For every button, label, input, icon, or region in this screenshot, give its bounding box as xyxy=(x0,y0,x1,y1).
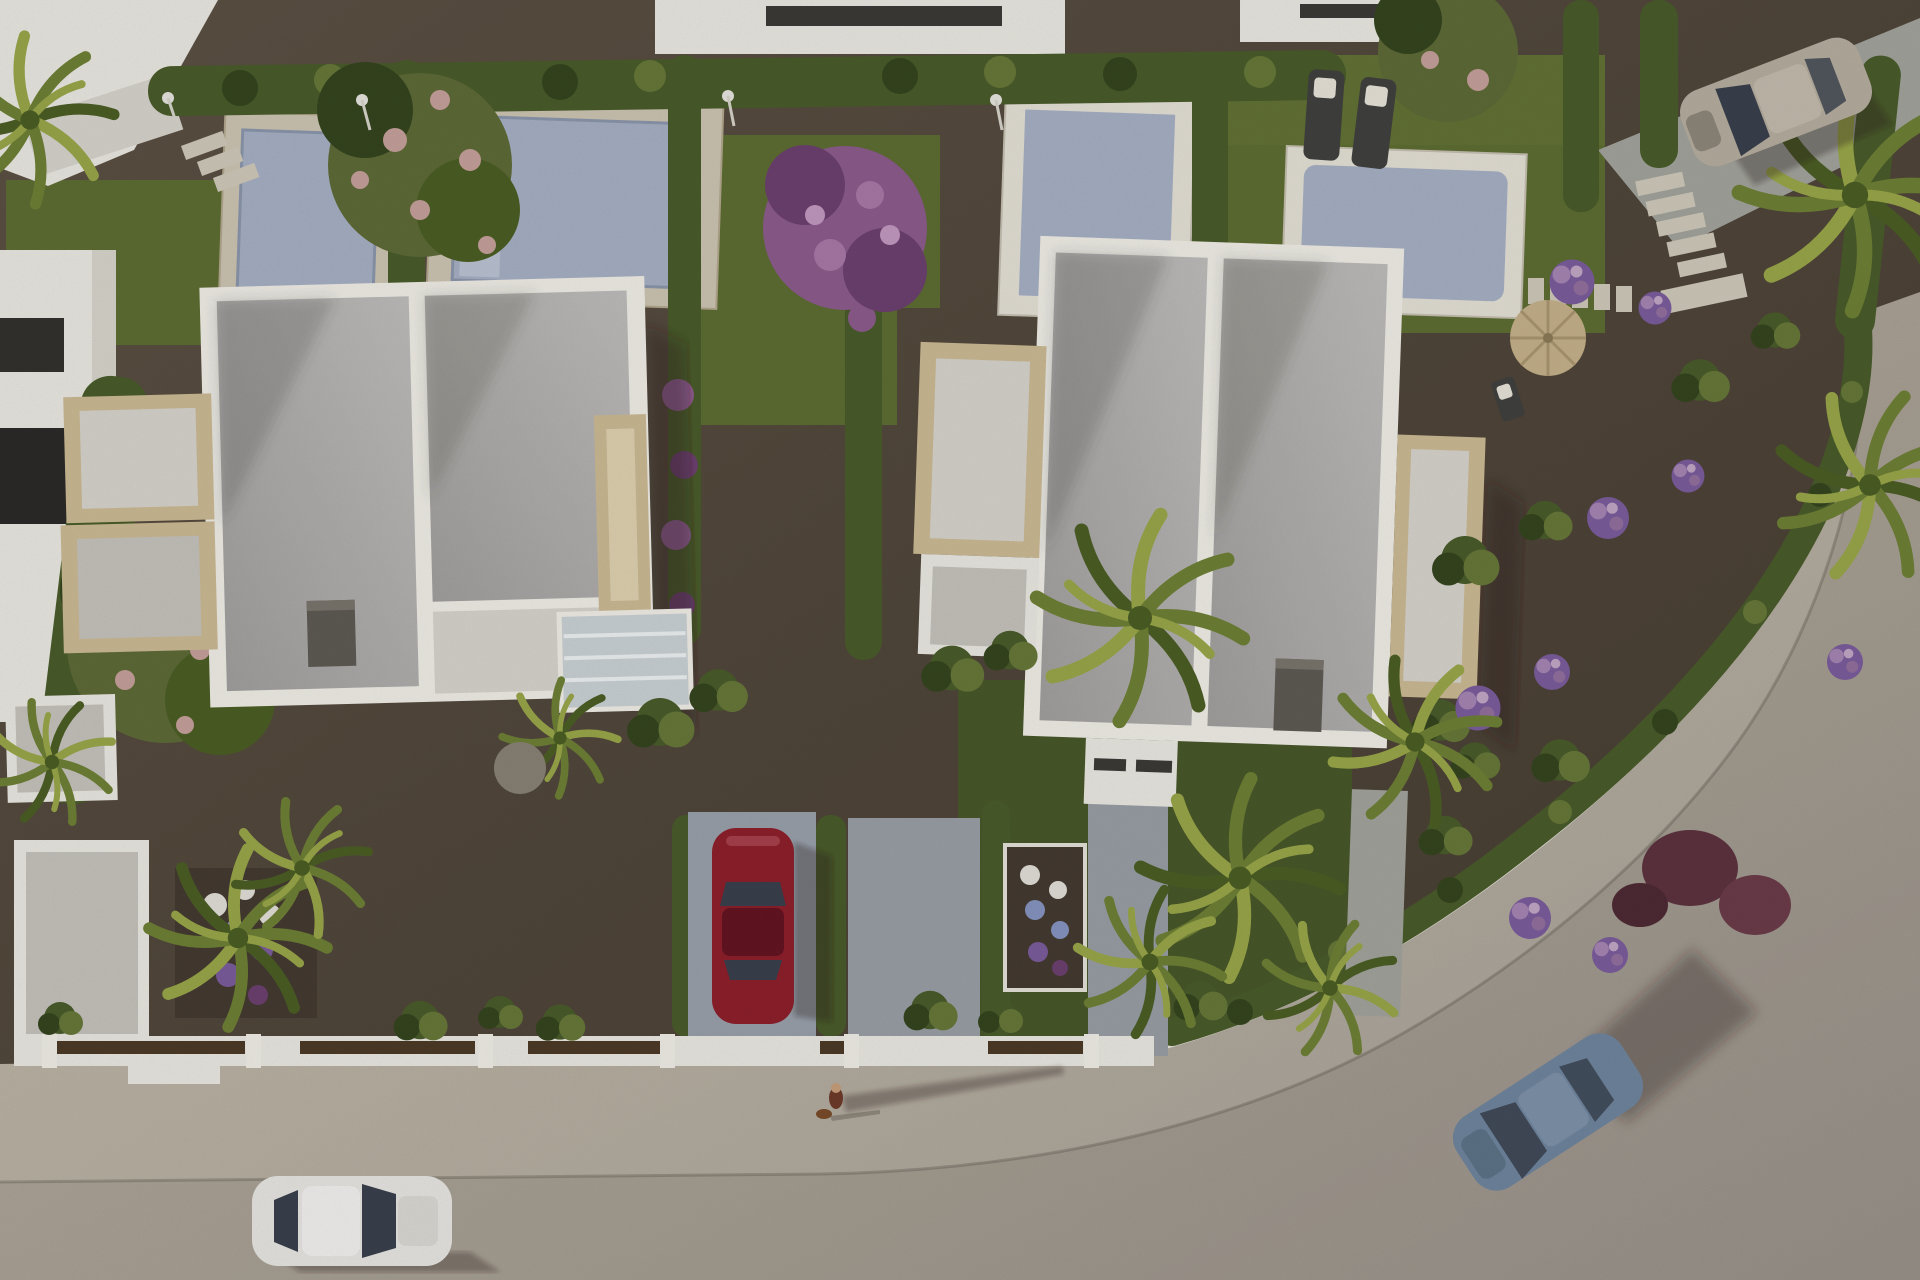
scene-canvas xyxy=(0,0,1920,1280)
aerial-render xyxy=(0,0,1920,1280)
film-grain-overlay xyxy=(0,0,1920,1280)
